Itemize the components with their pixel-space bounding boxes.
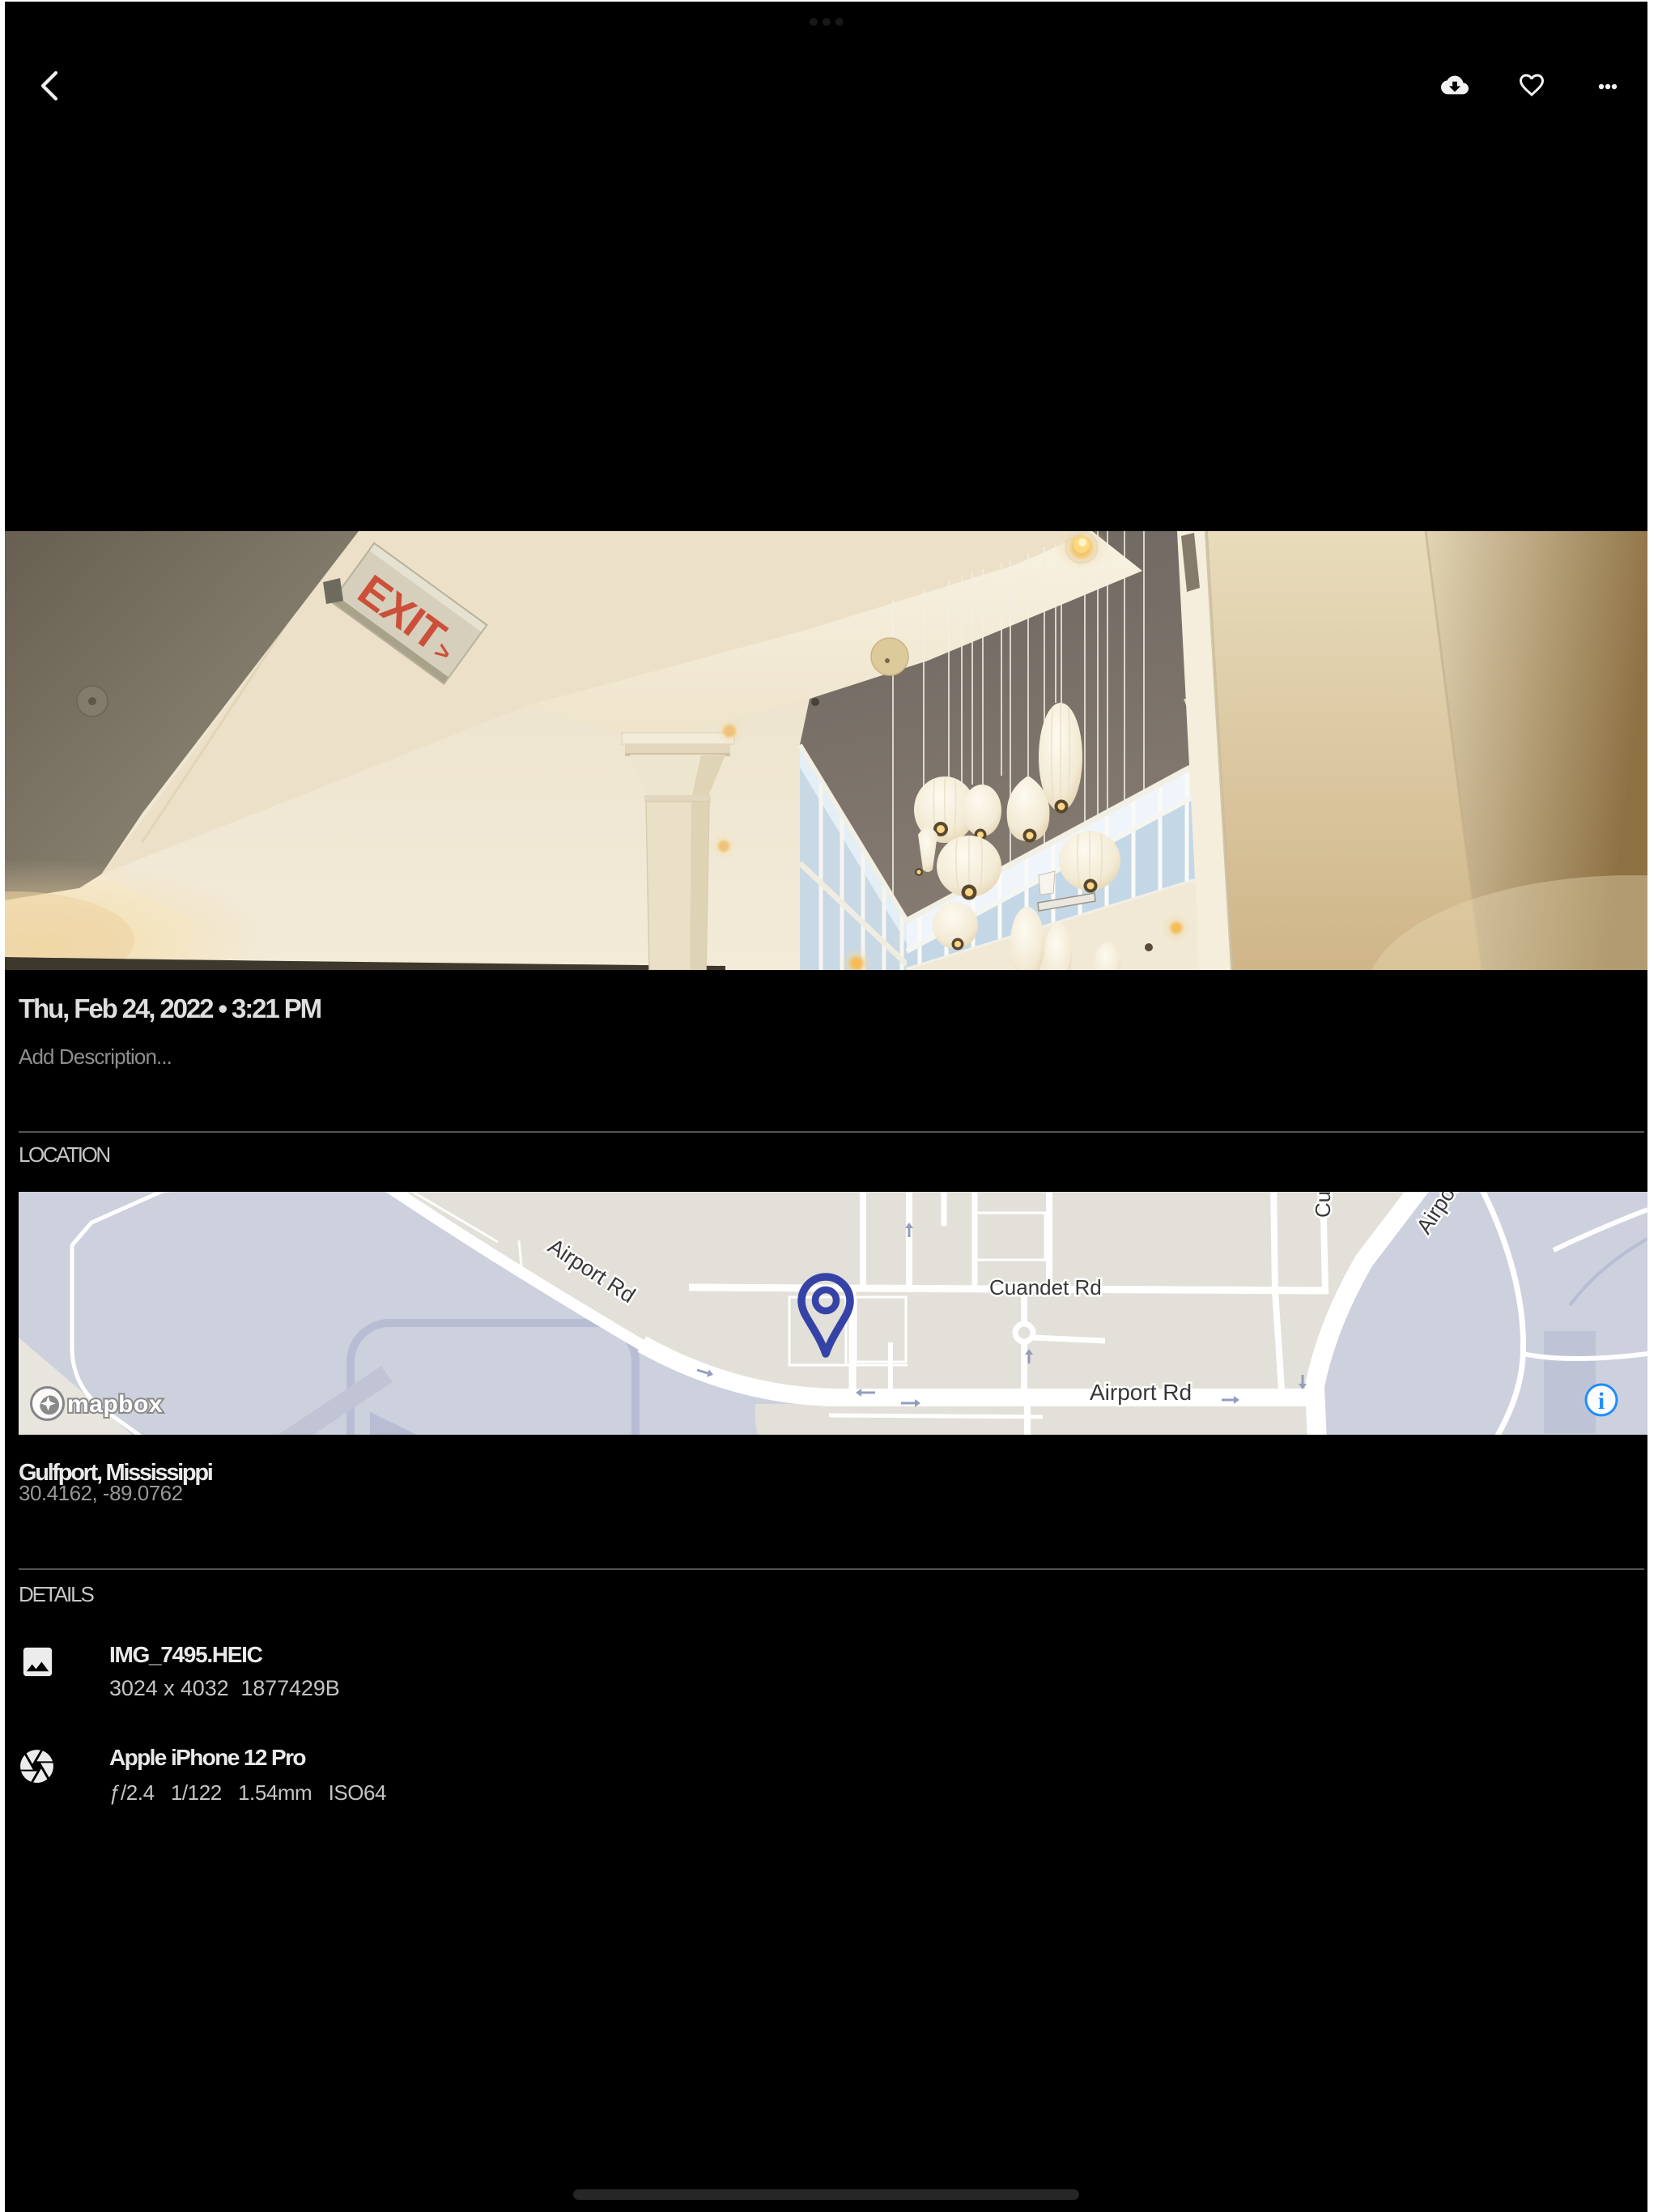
svg-text:i: i <box>1598 1388 1605 1414</box>
svg-text:Airport Rd: Airport Rd <box>1090 1380 1192 1405</box>
svg-text:Cuandet Rd: Cuandet Rd <box>1311 1192 1335 1218</box>
svg-text:Cuandet Rd: Cuandet Rd <box>989 1275 1102 1300</box>
svg-text:mapbox: mapbox <box>67 1391 163 1418</box>
